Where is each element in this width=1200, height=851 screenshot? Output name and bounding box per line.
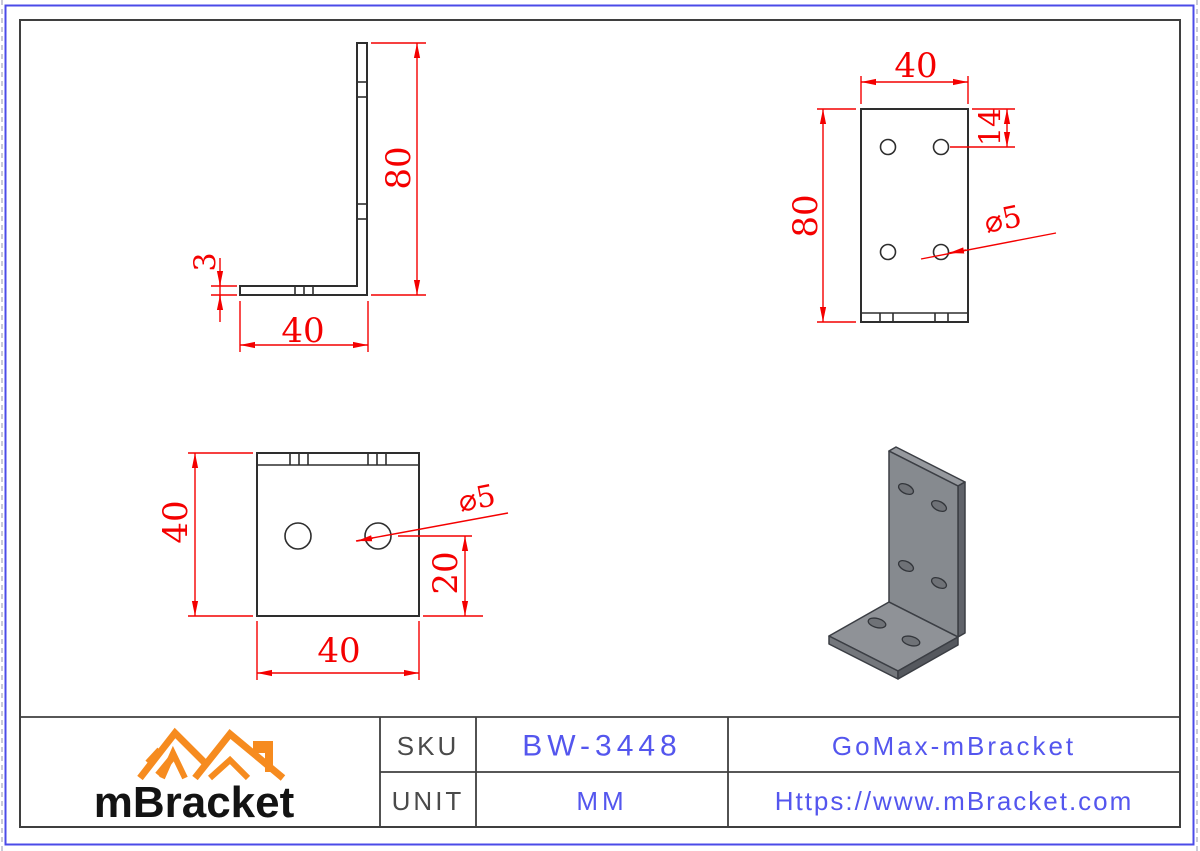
front-view-holes <box>881 140 949 260</box>
top-hole-diameter-text: ⌀5 <box>455 478 498 519</box>
website-url: Https://www.mBracket.com <box>775 786 1134 816</box>
logo-slope-tick-1 <box>148 750 160 763</box>
logo-left-inner-chevron <box>162 753 185 778</box>
front-hole-offset-dim-text: 14 <box>974 108 1009 146</box>
sku-label: SKU <box>397 731 459 761</box>
brand-name: mBracket <box>94 778 295 827</box>
front-view-outline <box>861 109 968 322</box>
front-view: 40 80 14 ⌀5 <box>786 46 1056 322</box>
front-view-hidden-hole-lines <box>880 313 948 322</box>
unit-label: UNIT <box>392 786 465 816</box>
isometric-3d-view <box>829 447 965 679</box>
unit-value: MM <box>576 786 627 816</box>
front-hole-diameter-text: ⌀5 <box>981 199 1025 241</box>
iso-plate-edge-face <box>958 482 965 637</box>
title-block: mBracket SKU UNIT BW-3448 MM GoMax-mBrac… <box>20 717 1180 827</box>
brand-logo: mBracket <box>94 733 295 827</box>
top-view: 40 40 20 ⌀5 <box>156 453 508 680</box>
top-hole-offset-dim-text: 20 <box>426 551 466 594</box>
side-height-dim-text: 80 <box>379 146 419 189</box>
company-name: GoMax-mBracket <box>832 731 1076 761</box>
top-side-dim-text: 40 <box>156 500 196 543</box>
side-view: 80 40 3 <box>189 43 427 352</box>
sheet-outer-frame <box>6 6 1194 845</box>
logo-mountains-icon <box>140 733 283 778</box>
engineering-drawing-canvas: 80 40 3 40 80 14 ⌀5 <box>0 0 1200 851</box>
front-view-dimensions <box>817 76 1056 322</box>
top-view-hidden-hole-lines <box>290 453 386 465</box>
page-edge-dashes <box>2 0 1197 851</box>
front-height-dim-text: 80 <box>786 194 826 237</box>
side-width-dim-text: 40 <box>281 311 324 351</box>
side-view-dimensions <box>211 43 426 352</box>
top-view-holes <box>285 523 391 549</box>
top-width-dim-text: 40 <box>317 631 360 671</box>
front-width-dim-text: 40 <box>894 46 937 86</box>
side-view-outline <box>240 43 367 295</box>
side-thickness-dim-text: 3 <box>189 252 224 271</box>
sku-value: BW-3448 <box>522 730 682 763</box>
